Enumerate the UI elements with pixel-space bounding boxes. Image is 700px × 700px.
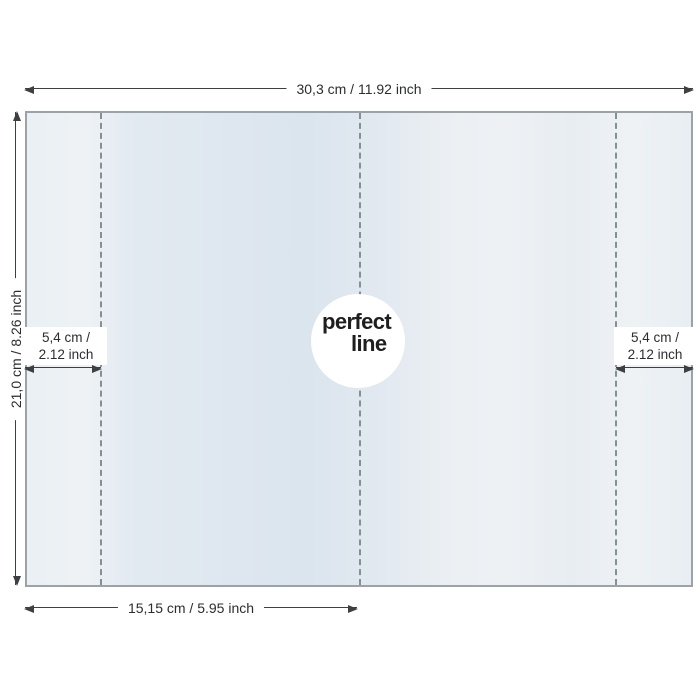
left-flap-label-inch: 2.12 inch	[25, 346, 107, 363]
total-width-label: 30,3 cm / 11.92 inch	[286, 80, 431, 98]
perfect-line-logo: perfect line	[311, 294, 405, 388]
logo-word-perfect: perfect	[322, 311, 391, 333]
product-dimension-diagram: perfect line 30,3 cm / 11.92 inch 21,0 c…	[0, 0, 700, 700]
logo-word-line: line	[351, 333, 387, 355]
half-width-label: 15,15 cm / 5.95 inch	[118, 599, 264, 617]
arrowhead-left-icon	[24, 365, 34, 373]
dimension-half-width: 15,15 cm / 5.95 inch	[25, 607, 357, 608]
dimension-right-flap	[616, 367, 693, 368]
arrowhead-right-icon	[684, 365, 694, 373]
arrowhead-right-icon	[92, 365, 102, 373]
left-flap-label: 5,4 cm / 2.12 inch	[25, 327, 107, 365]
right-flap-label-inch: 2.12 inch	[614, 346, 696, 363]
arrowhead-up-icon	[13, 111, 21, 121]
arrowhead-right-icon	[348, 605, 358, 613]
total-height-label: 21,0 cm / 8.26 inch	[7, 277, 25, 419]
arrowhead-left-icon	[24, 605, 34, 613]
arrowhead-down-icon	[13, 576, 21, 586]
arrowhead-left-icon	[24, 86, 34, 94]
dimension-total-width: 30,3 cm / 11.92 inch	[25, 88, 693, 89]
right-flap-label: 5,4 cm / 2.12 inch	[614, 327, 696, 365]
left-flap-label-cm: 5,4 cm /	[25, 329, 107, 346]
dimension-total-height: 21,0 cm / 8.26 inch	[15, 112, 16, 585]
dimension-left-flap	[25, 367, 101, 368]
arrowhead-left-icon	[615, 365, 625, 373]
right-flap-label-cm: 5,4 cm /	[614, 329, 696, 346]
arrowhead-right-icon	[684, 86, 694, 94]
